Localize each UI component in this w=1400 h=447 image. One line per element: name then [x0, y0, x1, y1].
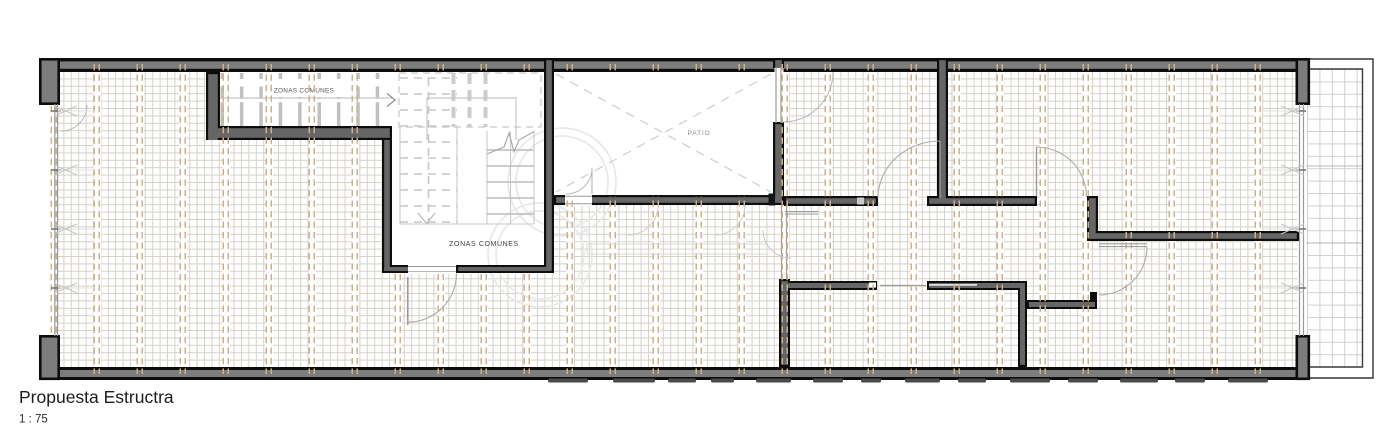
svg-text:1 : 75: 1 : 75	[19, 414, 48, 426]
svg-text:PATIO: PATIO	[688, 130, 711, 137]
svg-text:Propuesta Estructra: Propuesta Estructra	[19, 387, 174, 407]
svg-text:ZONAS COMUNES: ZONAS COMUNES	[449, 241, 519, 248]
